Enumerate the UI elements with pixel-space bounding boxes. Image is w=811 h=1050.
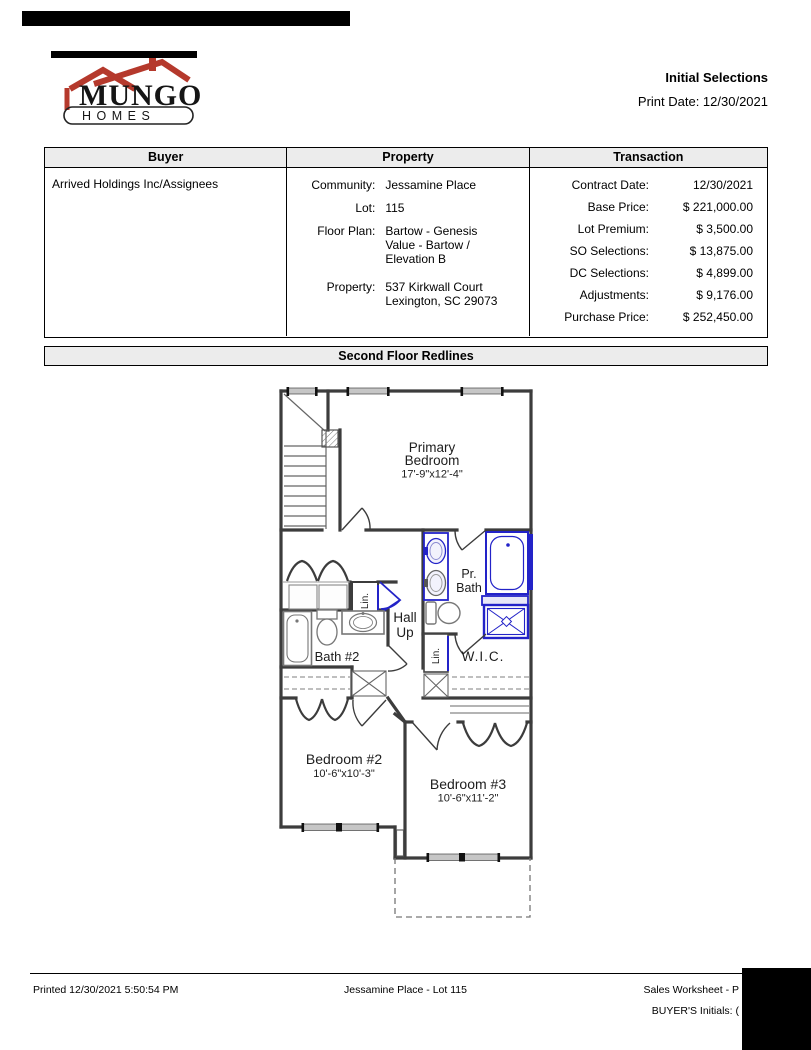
footer-right: Sales Worksheet - P [643,984,739,996]
transaction-value: $ 13,875.00 [649,244,767,258]
redaction-bar-footer [742,968,811,1050]
column-header-property: Property [287,148,529,167]
hall-door-redline [380,582,400,612]
transaction-label: Adjustments: [530,288,649,302]
svg-text:Bath: Bath [456,581,482,595]
mungo-homes-logo: MUNGO HOMES [46,48,201,128]
staircase [284,394,338,529]
toilet-bowl [317,619,337,645]
transaction-row: Lot Premium: $ 3,500.00 [530,222,767,236]
label-primary-dims: 17'-9"x12'-4" [401,469,463,481]
shower-redline [484,605,528,638]
primary-bedroom-door [342,508,370,530]
section-title: Second Floor Redlines [338,349,473,363]
dashed-shelf-lines [284,677,529,689]
property-row: Property: 537 Kirkwall Court Lexington, … [287,280,528,308]
transaction-row: Purchase Price: $ 252,450.00 [530,310,767,324]
svg-text:Bedroom: Bedroom [405,453,460,468]
logo-text-homes: HOMES [82,109,155,123]
bedroom3-bifold-door [463,723,527,746]
wall-shaft [397,830,404,856]
transaction-value: $ 9,176.00 [649,288,767,302]
property-label: Lot: [287,201,375,215]
transaction-label: Lot Premium: [530,222,649,236]
summary-table-header: Buyer Property Transaction [45,148,767,168]
toilet-tank [426,602,436,624]
bedroom3-closet-shelf [450,706,529,713]
bath2-door [388,645,407,671]
transaction-cell: Contract Date: 12/30/2021 Base Price: $ … [530,168,767,336]
primary-bath-door [455,530,486,550]
sales-worksheet-page: MUNGO HOMES Initial Selections Print Dat… [0,0,811,1050]
hall-closet [283,561,350,609]
x-doors [352,671,448,697]
summary-table: Buyer Property Transaction Arrived Holdi… [44,147,768,338]
label-bath2: Bath #2 [315,649,360,664]
label-bedroom3-dims: 10'-6"x11'-2" [438,793,499,805]
window [287,387,318,396]
label-bedroom3: Bedroom #3 [430,776,506,792]
label-wic: W.I.C. [462,649,505,664]
svg-text:Up: Up [396,625,413,640]
property-row: Floor Plan: Bartow - Genesis Value - Bar… [287,224,528,266]
property-value: Jessamine Place [385,178,503,192]
property-row: Lot: 115 [287,201,528,215]
property-value: 115 [385,201,503,215]
bifold-door [287,561,348,581]
property-cell: Community: Jessamine Place Lot: 115 Floo… [287,168,529,336]
property-value: Bartow - Genesis Value - Bartow / Elevat… [385,224,497,266]
footer-initials: BUYER'S Initials: ( [652,1005,739,1017]
transaction-value: $ 221,000.00 [649,200,767,214]
bedroom2-door [353,700,386,726]
transaction-value: $ 3,500.00 [649,222,767,236]
transaction-label: DC Selections: [530,266,649,280]
toilet-bowl [438,603,460,624]
transaction-row: DC Selections: $ 4,899.00 [530,266,767,280]
bedroom2-bifold-door [296,699,348,720]
label-pr-bath: Pr. [461,567,476,581]
document-title: Initial Selections [665,70,768,85]
buyer-cell: Arrived Holdings Inc/Assignees [45,168,287,336]
transaction-value: $ 252,450.00 [649,310,767,324]
window-redline [529,534,534,590]
toilet-tank [317,610,337,619]
redaction-bar-logo [51,51,197,58]
tub-deck [482,596,528,605]
bedroom3-door [412,722,450,750]
label-bedroom2-dims: 10'-6"x10'-3" [313,768,375,780]
property-label: Property: [287,280,375,308]
closet-door-x [424,674,448,697]
label-bedroom2: Bedroom #2 [306,751,382,767]
stair-landing-hatch [322,430,338,447]
transaction-label: SO Selections: [530,244,649,258]
print-date: Print Date: 12/30/2021 [638,94,768,109]
property-value: 537 Kirkwall Court Lexington, SC 29073 [385,280,503,308]
transaction-row: SO Selections: $ 13,875.00 [530,244,767,258]
transaction-label: Base Price: [530,200,649,214]
window [347,387,390,396]
windows-bottom [302,823,501,862]
transaction-row: Base Price: $ 221,000.00 [530,200,767,214]
transaction-row: Contract Date: 12/30/2021 [530,178,767,192]
closet-door-x [352,671,386,696]
property-row: Community: Jessamine Place [287,178,528,192]
transaction-value: 12/30/2021 [649,178,767,192]
transaction-row: Adjustments: $ 9,176.00 [530,288,767,302]
transaction-label: Purchase Price: [530,310,649,324]
property-label: Community: [287,178,375,192]
floor-plan: Primary Bedroom 17'-9"x12'-4" Pr. Bath H… [260,380,550,930]
property-label: Floor Plan: [287,224,375,266]
footer-divider [30,973,780,974]
label-lin-wic: Lin. [431,648,442,664]
window [461,387,504,396]
label-hall: Hall [393,610,416,625]
buyer-name: Arrived Holdings Inc/Assignees [45,168,286,191]
transaction-label: Contract Date: [530,178,649,192]
transaction-value: $ 4,899.00 [649,266,767,280]
column-header-transaction: Transaction [530,148,767,167]
redaction-bar-top [22,11,350,26]
roof-below-dashed [395,858,530,917]
label-lin-hall: Lin. [360,593,371,609]
column-header-buyer: Buyer [45,148,287,167]
section-title-bar: Second Floor Redlines [44,346,768,366]
